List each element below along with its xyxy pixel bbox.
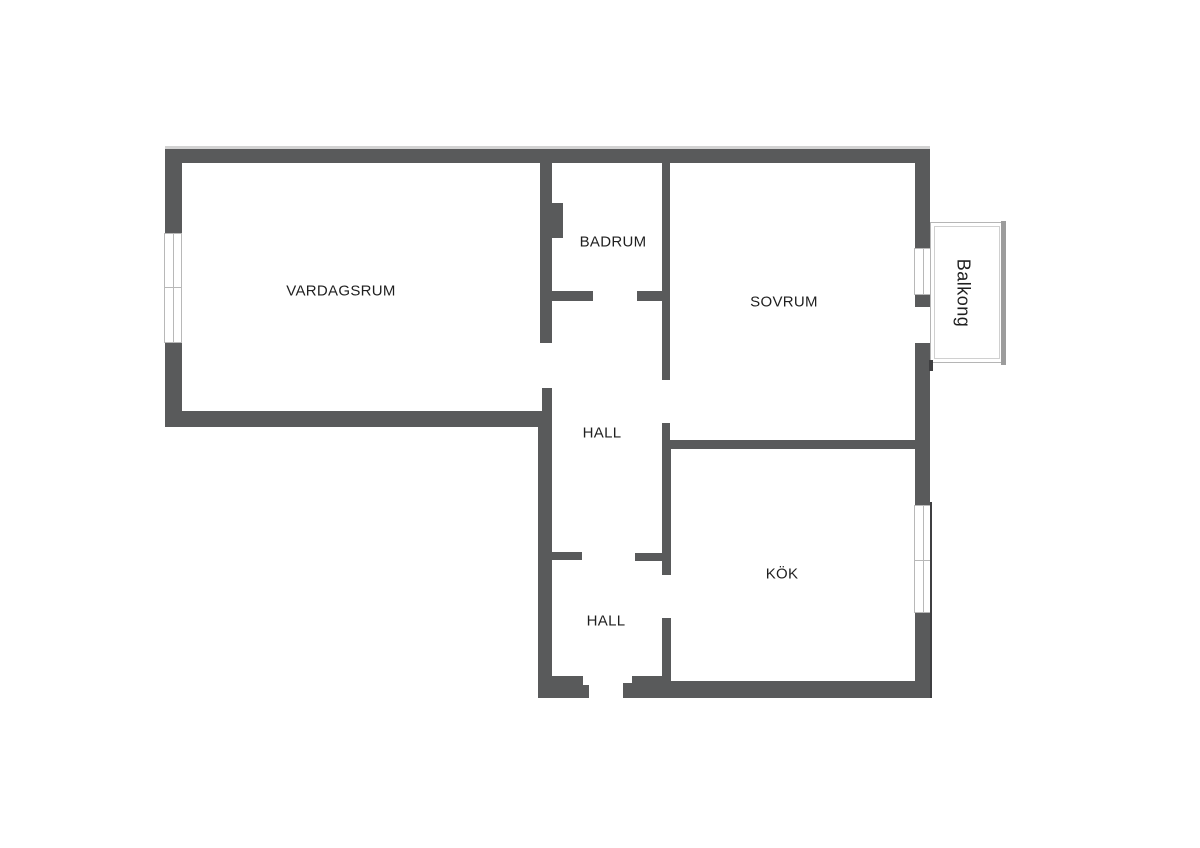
room-label-badrum: BADRUM [580,234,647,251]
window-kok-divider [915,560,930,561]
wall-stub-hall-left [552,552,582,560]
entrance-jamb-right [623,683,632,698]
entrance-ledge-left [552,676,583,681]
wall-stub-vardagsrum-door [542,388,552,411]
facade-line [930,502,932,698]
wall-vardagsrum-badrum [540,163,552,343]
room-label-hall-lower: HALL [587,613,626,630]
wall-hall-left [538,411,552,698]
window-kok [914,505,931,613]
window-sovrum-mullion [923,249,924,294]
wall-right-upper [915,149,930,248]
window-vardagsrum-mullion [173,234,174,342]
room-label-sovrum: SOVRUM [750,294,818,311]
wall-right-middle [915,343,930,505]
balcony-corner-tick [929,360,933,371]
wall-stub-hall-right [635,553,662,561]
wall-sovrum-kok-divider [662,440,915,449]
wall-badrum-bottom-left [552,291,593,301]
wall-badrum-sovrum [662,163,670,380]
balcony-railing [1001,221,1006,365]
wall-top [165,149,930,163]
room-label-vardagsrum: VARDAGSRUM [286,283,395,300]
badrum-pillar [552,203,563,238]
wall-kok-left-lower [662,618,671,681]
window-vardagsrum-divider [165,287,181,288]
wall-vardagsrum-bottom [165,411,552,427]
wall-badrum-bottom-right [637,291,670,301]
wall-stub-sovrum-door [662,423,670,441]
window-sovrum [914,248,931,295]
wall-kok-left-upper [662,440,671,575]
window-kok-mullion [923,506,924,612]
wall-left-upper [165,149,182,233]
window-vardagsrum [164,233,182,343]
entrance-jamb-left [583,685,589,698]
room-label-hall-upper: HALL [583,425,622,442]
room-label-kok: KÖK [766,566,799,583]
room-label-balkong: Balkong [953,259,974,328]
floor-plan: VARDAGSRUM BADRUM SOVRUM HALL HALL KÖK B… [0,0,1200,848]
wall-right-between-window-and-door [915,295,930,307]
